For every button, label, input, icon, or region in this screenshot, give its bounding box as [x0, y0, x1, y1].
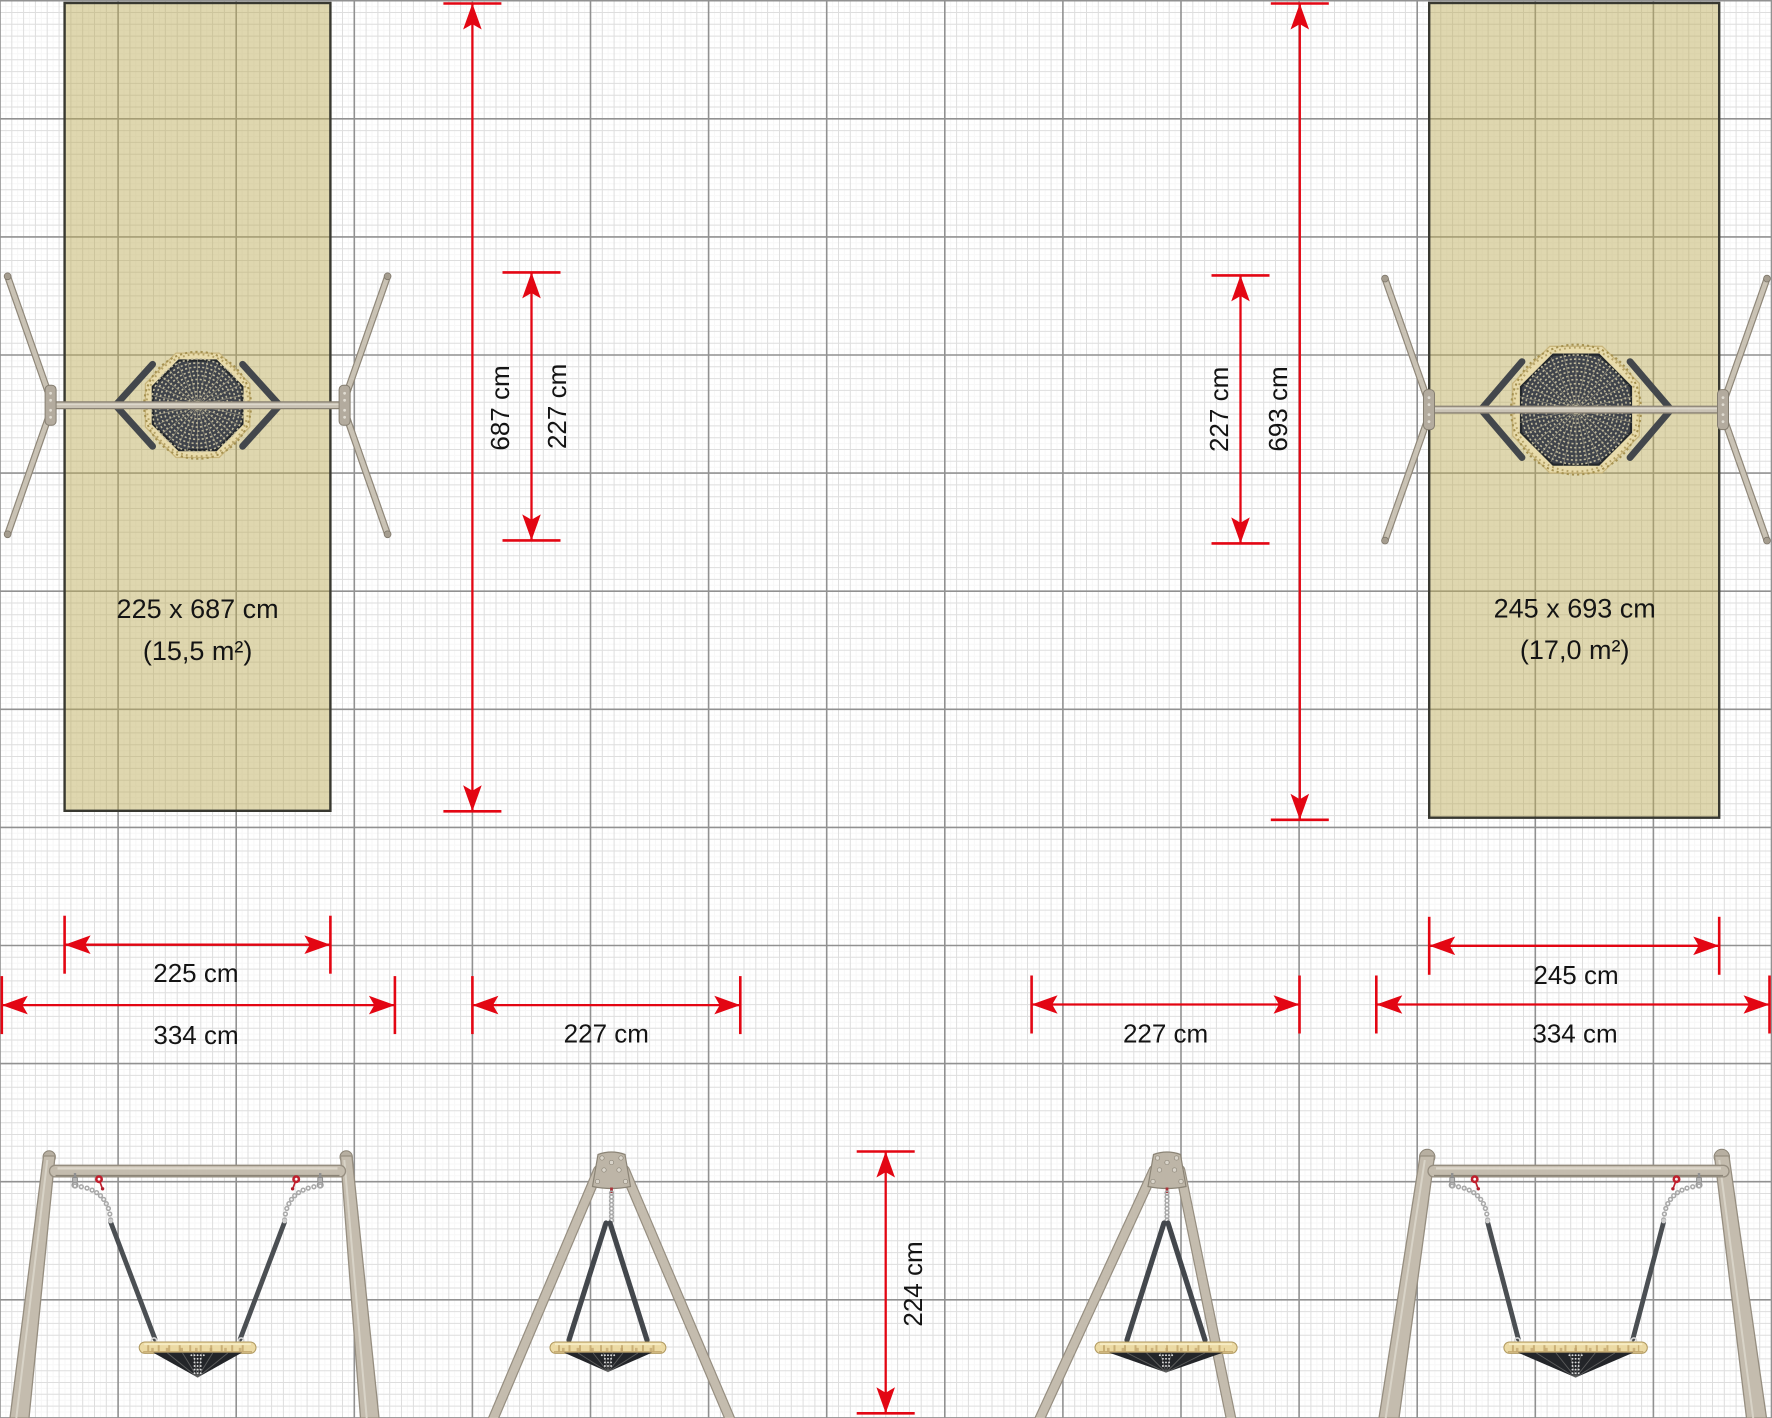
svg-text:227 cm: 227 cm: [1123, 1019, 1208, 1049]
svg-text:334 cm: 334 cm: [153, 1020, 238, 1050]
svg-text:693 cm: 693 cm: [1263, 366, 1293, 451]
svg-text:224 cm: 224 cm: [898, 1241, 928, 1326]
svg-text:245 cm: 245 cm: [1533, 960, 1618, 990]
svg-text:227 cm: 227 cm: [1204, 367, 1234, 452]
svg-text:687 cm: 687 cm: [485, 365, 515, 450]
svg-text:225 x 687 cm: 225 x 687 cm: [117, 594, 279, 624]
svg-text:(15,5 m²): (15,5 m²): [143, 636, 253, 666]
svg-text:245 x 693 cm: 245 x 693 cm: [1494, 593, 1656, 623]
svg-text:225 cm: 225 cm: [153, 958, 238, 988]
svg-text:227 cm: 227 cm: [542, 364, 572, 449]
svg-text:227 cm: 227 cm: [564, 1019, 649, 1049]
svg-text:(17,0 m²): (17,0 m²): [1520, 635, 1630, 665]
svg-text:334 cm: 334 cm: [1532, 1019, 1617, 1049]
